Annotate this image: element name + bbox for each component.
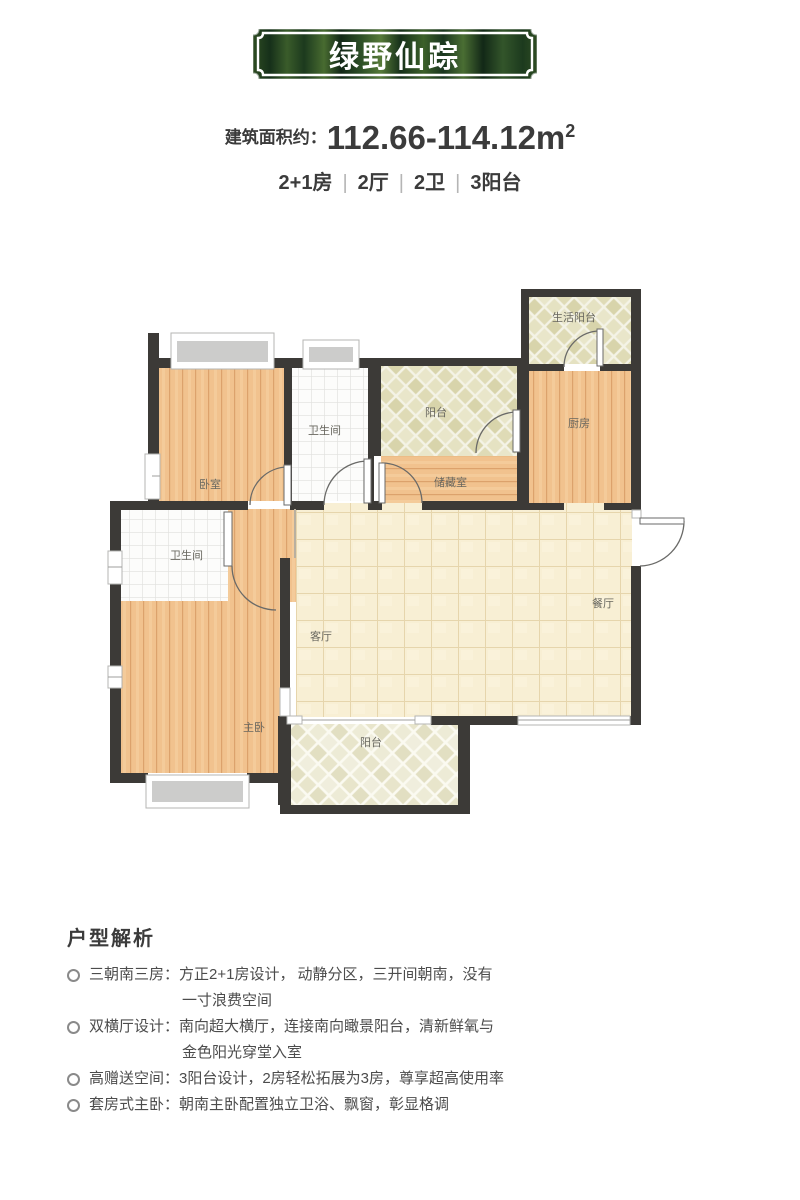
svg-text:生活阳台: 生活阳台 — [552, 310, 596, 324]
svg-text:储藏室: 储藏室 — [434, 475, 467, 489]
svg-text:阳台: 阳台 — [425, 405, 447, 419]
svg-text:主卧: 主卧 — [243, 721, 265, 734]
svg-text:客厅: 客厅 — [310, 629, 332, 643]
svg-text:厨房: 厨房 — [568, 417, 590, 430]
svg-text:卫生间: 卫生间 — [170, 548, 203, 562]
svg-text:阳台: 阳台 — [360, 735, 382, 749]
svg-text:卧室: 卧室 — [199, 477, 221, 491]
svg-text:卫生间: 卫生间 — [308, 423, 341, 437]
svg-text:餐厅: 餐厅 — [592, 596, 614, 610]
